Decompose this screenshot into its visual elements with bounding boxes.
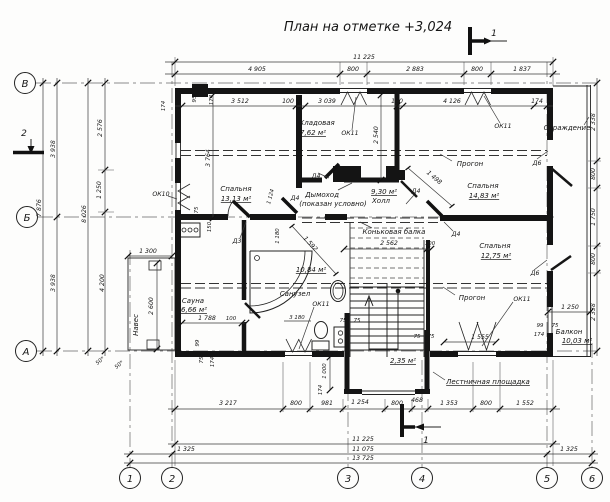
dim-li-2576: 2 576: [97, 119, 104, 137]
dim-nw-150: 150: [207, 221, 213, 232]
dim-li-1250: 1 250: [96, 181, 103, 199]
dim-left-3938a: 3 938: [50, 140, 57, 158]
callout-girder-top: Прогон: [457, 160, 484, 168]
dim-50a: 50*: [95, 356, 106, 367]
dim-canopy-1300: 1 300: [139, 248, 157, 255]
dim-1325-left: 1 325: [177, 446, 195, 453]
sauna-stove: [178, 223, 200, 237]
callouts: Прогон Прогон Коньковая балка Дымоход (п…: [152, 96, 590, 380]
dim-b-3217: 3 217: [219, 400, 237, 407]
dim-top-5: 1 837: [513, 66, 531, 73]
dim-50b: 50*: [114, 360, 125, 371]
dim-sub-174a: 174: [209, 94, 215, 105]
chimney-block: [333, 166, 361, 182]
dim-nw-75: 75: [194, 206, 200, 213]
dim-sub-100a: 100: [282, 98, 294, 105]
axis-row-a: А: [22, 347, 30, 358]
dim-1180: 1 180: [275, 228, 281, 244]
callout-chimney-1: Дымоход: [304, 191, 339, 199]
dim-canopy-2600: 2 600: [148, 297, 155, 315]
dim-1000: 1 000: [322, 363, 328, 379]
dim-sauna-100: 100: [226, 316, 237, 322]
dim-total-11225: 11 225: [352, 436, 374, 443]
dim-1592: 1 592: [301, 235, 318, 253]
dim-r-2338b: 2 338: [590, 303, 597, 321]
dim-b-468: 468: [411, 397, 423, 404]
room-sauna-area: 6,66 м²: [181, 306, 207, 314]
dim-leftwall-174: 174: [161, 100, 167, 111]
room-balcony-area: 10,03 м²: [562, 337, 593, 345]
dim-left-3938b: 3 938: [50, 274, 57, 292]
corner-bath: [250, 251, 312, 313]
callout-railing: Ограждение: [544, 124, 591, 132]
tag-d3: Д3: [232, 238, 242, 245]
dim-3180: 3 180: [289, 315, 305, 321]
dim-sub-3512: 3 512: [231, 98, 249, 105]
tag-ok11-topmid: ОК11: [341, 130, 358, 137]
dim-1325-right: 1 325: [560, 446, 578, 453]
dim-b-981: 981: [321, 400, 333, 407]
tag-d4-bedroom2: Д4: [411, 188, 421, 195]
dim-sub-174b: 174: [531, 98, 543, 105]
callout-girder-bottom: Прогон: [459, 294, 486, 302]
axis-col-3: 3: [345, 474, 351, 485]
room-bath-area: 10,84 м²: [296, 266, 327, 274]
callout-ridge-beam: Коньковая балка: [363, 228, 426, 236]
dim-1498: 1 498: [425, 169, 443, 186]
tag-d4-bedroom1: Д4: [290, 195, 300, 202]
dim-r-800b: 800: [590, 253, 597, 265]
room-balcony-name: Балкон: [556, 328, 583, 336]
dim-2562: 2 562: [380, 240, 398, 247]
room-storage-area: 7,62 м²: [300, 129, 326, 137]
tag-ok11-topright: ОК11: [494, 123, 511, 130]
room-bedroom1-name: Спальня: [220, 185, 251, 193]
dim-r-1750: 1 750: [590, 208, 597, 226]
room-hall-area: 9,30 м²: [371, 188, 397, 196]
dim-top-1: 4 905: [248, 66, 266, 73]
wall-foot: [393, 170, 405, 180]
room-bedroom1-area: 13,13 м²: [221, 195, 252, 203]
room-bedroom2-area: 14,83 м²: [469, 192, 500, 200]
dim-total-13725: 13 725: [352, 455, 374, 462]
dim-sub-100b: 100: [391, 98, 403, 105]
landing-area: 2,35 м²: [390, 357, 416, 365]
dim-left-7876: 7 876: [36, 199, 43, 217]
dim-st75d: 75: [428, 334, 435, 340]
tag-ok11-bath: ОК11: [312, 301, 329, 308]
tag-d6-bottom: Д6: [530, 270, 540, 277]
axis-row-v: В: [22, 79, 29, 90]
tag-d6-top: Д6: [532, 160, 542, 167]
dim-total-11075: 11 075: [352, 446, 374, 453]
room-storage-name: Кладовая: [299, 119, 334, 127]
room-canopy-name: Навес: [132, 314, 140, 336]
dim-sauna-1788: 1 788: [198, 315, 216, 322]
floor-plan-drawing: В Б А 1 2 3 4 5 6: [0, 0, 610, 502]
dim-left-8026: 8 026: [81, 205, 88, 223]
section-mark-1-bottom-label: 1: [423, 436, 429, 446]
landing-callout: Лестничная площадка: [445, 378, 530, 386]
dim-top-2: 800: [347, 66, 359, 73]
dim-top-4: 800: [471, 66, 483, 73]
dim-sub-3039: 3 039: [318, 98, 336, 105]
axis-row-b: Б: [24, 213, 31, 224]
room-bedroom3-name: Спальня: [479, 242, 510, 250]
axis-col-6: 6: [589, 474, 595, 485]
dim-2540: 2 540: [373, 126, 380, 144]
dim-st75c: 75: [414, 334, 421, 340]
dim-sw-75: 75: [199, 356, 205, 363]
tag-ok10: ОК10: [152, 191, 169, 198]
fixtures: [178, 223, 347, 350]
dim-balc-99: 99: [537, 323, 544, 329]
tag-d4-storage: Д4: [311, 173, 321, 180]
dim-li-4200: 4 200: [99, 274, 106, 292]
dim-sub-95: 95: [192, 95, 198, 102]
axis-col-1: 1: [127, 474, 133, 485]
dim-st75a: 75: [340, 318, 347, 324]
dim-3764: 3 764: [205, 149, 212, 167]
room-hall-name: Холл: [371, 197, 391, 205]
toilet: [312, 322, 329, 351]
dim-b-1353: 1 353: [440, 400, 458, 407]
dim-1124: 1 124: [266, 188, 276, 205]
dimension-texts: 11 225 4 905 800 2 883 800 1 837 95 174 …: [36, 54, 597, 462]
dim-b-800a: 800: [290, 400, 302, 407]
section-mark-2-label: 2: [21, 129, 27, 139]
stair-up-arrow: [369, 291, 398, 349]
axis-col-5: 5: [544, 474, 550, 485]
room-bath-name: Санузел: [280, 290, 311, 298]
room-bedroom2-name: Спальня: [467, 182, 498, 190]
dim-b-800c: 800: [480, 400, 492, 407]
axis-col-2: 2: [169, 474, 175, 485]
room-sauna-name: Сауна: [182, 297, 204, 305]
dim-sw-99: 99: [195, 339, 201, 346]
room-labels: Спальня 13,13 м² Кладовая 7,62 м² 9,30 м…: [132, 119, 592, 386]
dim-hall-100: 100: [425, 241, 436, 247]
dim-balc-174: 174: [534, 332, 545, 338]
dim-st75b: 75: [354, 318, 361, 324]
callout-chimney-2: (показан условно): [299, 200, 367, 208]
tag-ok11-bottomright: ОК11: [513, 296, 530, 303]
floor-plan-sheet: В Б А 1 2 3 4 5 6: [0, 0, 610, 502]
room-bedroom3-area: 12,75 м²: [481, 252, 512, 260]
dim-bump-174: 174: [318, 384, 324, 395]
dim-r-2338a: 2 338: [590, 113, 597, 131]
dim-sw-174: 174: [210, 356, 216, 367]
drawing-title: План на отметке +3,024: [284, 20, 452, 35]
wall-pier: [192, 84, 208, 97]
dim-top-total: 11 225: [353, 54, 375, 61]
section-mark-1-top-label: 1: [491, 29, 497, 39]
dim-r-800a: 800: [590, 168, 597, 180]
dim-b-1552: 1 552: [516, 400, 534, 407]
tag-d4-bedroom3: Д4: [451, 231, 461, 238]
dim-top-3: 2 883: [406, 66, 424, 73]
dim-balc-1250: 1 250: [561, 304, 579, 311]
dim-sub-4126: 4 126: [443, 98, 461, 105]
dim-b-1254: 1 254: [351, 399, 369, 406]
axis-col-4: 4: [419, 474, 425, 485]
